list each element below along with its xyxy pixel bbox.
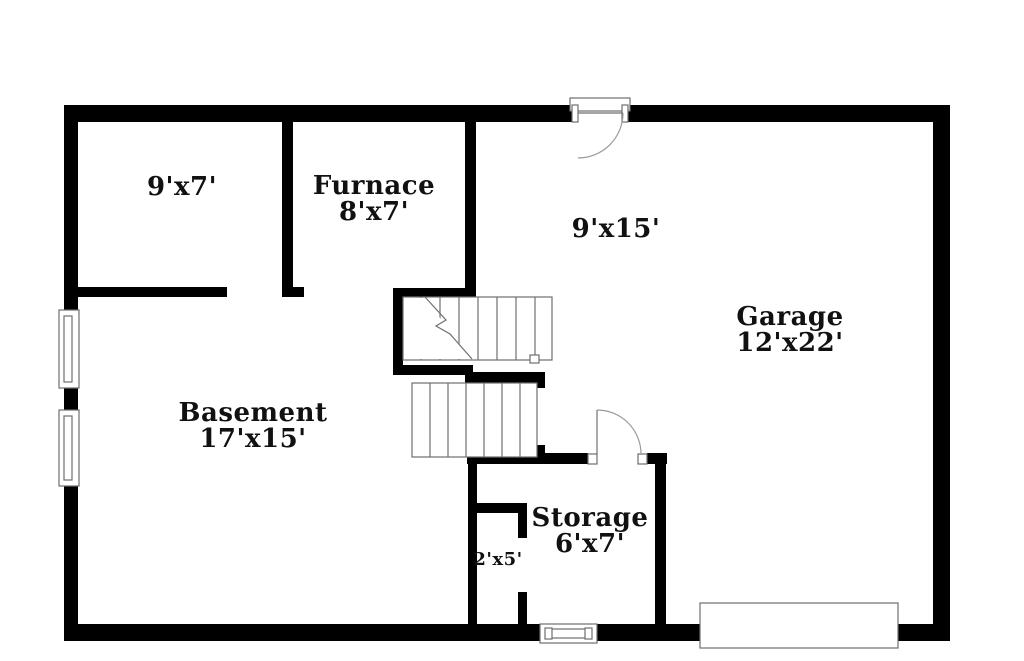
window-icon-left-lower	[59, 410, 79, 486]
entry-door-threshold	[570, 98, 630, 111]
floor-plan: 9'x7' Furnace 8'x7' 9'x15' Garage 12'x22…	[0, 0, 1024, 661]
window-icon-left-upper	[59, 310, 79, 388]
stair-nosing-marker	[530, 355, 539, 363]
furnace-label: Furnace 8'x7'	[313, 173, 435, 225]
upper-staircase	[403, 297, 552, 363]
storage-dimensions: 6'x7'	[532, 531, 649, 557]
entry-door-icon	[570, 98, 630, 158]
storage-label: Storage 6'x7'	[532, 505, 649, 557]
garage-name: Garage	[736, 304, 843, 330]
closet-label: 2'x5'	[473, 551, 522, 569]
garage-door-icon	[700, 603, 898, 648]
garage-dimensions: 12'x22'	[736, 330, 843, 356]
closet-dimensions: 2'x5'	[473, 551, 522, 569]
basement-name: Basement	[179, 400, 328, 426]
garage-label: Garage 12'x22'	[736, 304, 843, 356]
room-9x7-label: 9'x7'	[147, 174, 217, 200]
furnace-name: Furnace	[313, 173, 435, 199]
furnace-dimensions: 8'x7'	[313, 199, 435, 225]
lower-staircase	[412, 383, 537, 457]
basement-dimensions: 17'x15'	[179, 426, 328, 452]
basement-label: Basement 17'x15'	[179, 400, 328, 452]
storage-name: Storage	[532, 505, 649, 531]
storage-door-icon	[588, 410, 647, 464]
hallway-label: 9'x15'	[572, 216, 661, 242]
hallway-dimensions: 9'x15'	[572, 216, 661, 242]
storage-door-swing-arc	[597, 410, 641, 454]
room-9x7-dimensions: 9'x7'	[147, 174, 217, 200]
window-icon-bottom	[540, 624, 597, 643]
entry-door-swing-arc	[578, 113, 623, 158]
